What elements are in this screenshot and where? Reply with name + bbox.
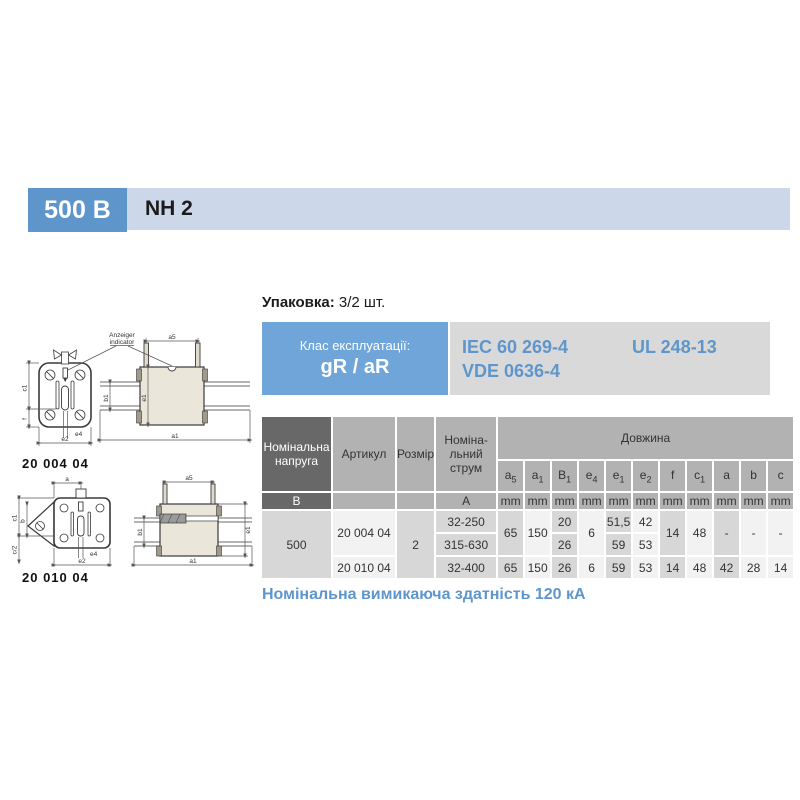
cell-b: 28 xyxy=(740,556,767,579)
cell-a5: 65 xyxy=(497,510,524,556)
standards-box: IEC 60 269-4 VDE 0636-4 UL 248-13 xyxy=(450,322,770,395)
col-header-B1: B1 xyxy=(551,460,578,492)
packaging-line: Упаковка: 3/2 шт. xyxy=(262,294,385,311)
unit-mm: mm xyxy=(686,492,713,510)
unit-mm: mm xyxy=(713,492,740,510)
cell-e4: 6 xyxy=(578,556,605,579)
drawing2-dim-a5: a5 xyxy=(185,475,193,482)
cell-a: 42 xyxy=(713,556,740,579)
unit-current: A xyxy=(435,492,497,510)
unit-mm: mm xyxy=(632,492,659,510)
cell-a: - xyxy=(713,510,740,556)
standard-vde: VDE 0636-4 xyxy=(462,359,632,383)
drawing1-dim-a1: a1 xyxy=(171,433,179,440)
cell-b: - xyxy=(740,510,767,556)
cell-current: 315-630 xyxy=(435,533,497,556)
voltage-badge: 500 В xyxy=(28,188,127,232)
cell-voltage: 500 xyxy=(261,510,332,579)
series-label: NH 2 xyxy=(145,197,193,221)
unit-mm: mm xyxy=(740,492,767,510)
cell-size: 2 xyxy=(396,510,435,579)
drawing1-indicator-label: indicator xyxy=(110,339,135,346)
drawing2-side-view xyxy=(134,484,252,556)
cell-e1: 59 xyxy=(605,556,632,579)
drawing1-caption: 20 004 04 xyxy=(22,456,89,471)
drawing2-dim-b: b xyxy=(20,519,27,523)
table-row: 20 010 04 32-400 65 150 26 6 59 53 14 48… xyxy=(261,556,794,579)
unit-mm: mm xyxy=(767,492,794,510)
unit-mm: mm xyxy=(659,492,686,510)
cell-article-1: 20 004 04 xyxy=(332,510,396,556)
drawing2-dim-e1: e1 xyxy=(245,526,252,534)
cell-e2: 53 xyxy=(632,556,659,579)
drawing2-dim-a1: a1 xyxy=(189,558,197,565)
cell-B1: 26 xyxy=(551,533,578,556)
cell-c1: 48 xyxy=(686,556,713,579)
drawing1-side-view xyxy=(100,343,250,425)
cell-article-2: 20 010 04 xyxy=(332,556,396,579)
drawing2-dim-e4: e4 xyxy=(90,551,98,558)
cell-e2: 53 xyxy=(632,533,659,556)
col-header-voltage: Номінальна напруга xyxy=(261,416,332,492)
drawing1-anzeiger-label: Anzeiger xyxy=(109,332,135,339)
col-header-current: Номіна- льний струм xyxy=(435,416,497,492)
unit-mm: mm xyxy=(578,492,605,510)
unit-mm: mm xyxy=(497,492,524,510)
col-header-size: Розмір xyxy=(396,416,435,492)
cell-e1: 51,5 xyxy=(605,510,632,533)
unit-voltage: В xyxy=(261,492,332,510)
table-row: 500 20 004 04 2 32-250 65 150 20 6 51,5 … xyxy=(261,510,794,533)
cell-c1: 48 xyxy=(686,510,713,556)
drawing1-dim-e4: e4 xyxy=(75,431,83,438)
dimension-table: Номінальна напруга Артикул Розмір Номіна… xyxy=(260,415,795,580)
col-header-article: Артикул xyxy=(332,416,396,492)
col-header-e2: e2 xyxy=(632,460,659,492)
unit-mm: mm xyxy=(551,492,578,510)
col-header-a: a xyxy=(713,460,740,492)
utilization-class-box: Клас експлуатації: gR / aR xyxy=(262,322,448,395)
breaking-capacity-note: Номінальна вимикаюча здатність 120 кА xyxy=(262,586,586,604)
drawing1-dim-b1: b1 xyxy=(103,394,110,402)
cell-e2: 42 xyxy=(632,510,659,533)
cell-B1: 26 xyxy=(551,556,578,579)
cell-f: 14 xyxy=(659,556,686,579)
technical-drawing-20-010-04: a c1 b c/2 e4 e2 a5 b1 e1 a1 xyxy=(12,474,257,570)
col-header-a1: a1 xyxy=(524,460,551,492)
cell-f: 14 xyxy=(659,510,686,556)
drawing2-dim-c-half: c/2 xyxy=(12,545,19,554)
cell-e1: 59 xyxy=(605,533,632,556)
col-header-e1: e1 xyxy=(605,460,632,492)
drawing2-dim-a: a xyxy=(65,476,69,483)
col-header-e4: e4 xyxy=(578,460,605,492)
col-header-f: f xyxy=(659,460,686,492)
cell-a5: 65 xyxy=(497,556,524,579)
drawing1-dim-a5: a5 xyxy=(168,334,176,341)
cell-e4: 6 xyxy=(578,510,605,556)
col-header-a5: a5 xyxy=(497,460,524,492)
col-header-c1: c1 xyxy=(686,460,713,492)
col-header-c: c xyxy=(767,460,794,492)
drawing1-dim-f: f xyxy=(22,418,29,420)
drawing1-dim-e1: e1 xyxy=(141,394,148,402)
col-group-length: Довжина xyxy=(497,416,794,460)
cell-current: 32-250 xyxy=(435,510,497,533)
cell-a1: 150 xyxy=(524,556,551,579)
drawing1-dim-e2: e2 xyxy=(61,436,69,443)
drawing2-dim-e2: e2 xyxy=(78,558,86,565)
utilization-class-value: gR / aR xyxy=(321,356,390,379)
unit-mm: mm xyxy=(524,492,551,510)
packaging-label: Упаковка: xyxy=(262,294,335,311)
cell-current: 32-400 xyxy=(435,556,497,579)
cell-a1: 150 xyxy=(524,510,551,556)
drawing1-dim-c1: c1 xyxy=(22,384,29,391)
drawing2-dim-b1: b1 xyxy=(137,528,144,536)
standard-iec: IEC 60 269-4 xyxy=(462,335,632,359)
cell-c: - xyxy=(767,510,794,556)
unit-size-empty xyxy=(396,492,435,510)
cell-B1: 20 xyxy=(551,510,578,533)
unit-article-empty xyxy=(332,492,396,510)
unit-mm: mm xyxy=(605,492,632,510)
technical-drawing-20-004-04: Anzeiger indicator a5 c1 f e4 e2 b1 e1 a… xyxy=(12,330,257,452)
cell-c: 14 xyxy=(767,556,794,579)
drawing1-front-view xyxy=(39,350,91,427)
drawing2-caption: 20 010 04 xyxy=(22,570,89,585)
col-header-b: b xyxy=(740,460,767,492)
series-header-bar: NH 2 xyxy=(127,188,790,230)
drawing2-dim-c1: c1 xyxy=(12,514,19,521)
utilization-class-label: Клас експлуатації: xyxy=(300,338,411,353)
standard-ul: UL 248-13 xyxy=(632,335,717,359)
packaging-value: 3/2 шт. xyxy=(339,294,385,311)
